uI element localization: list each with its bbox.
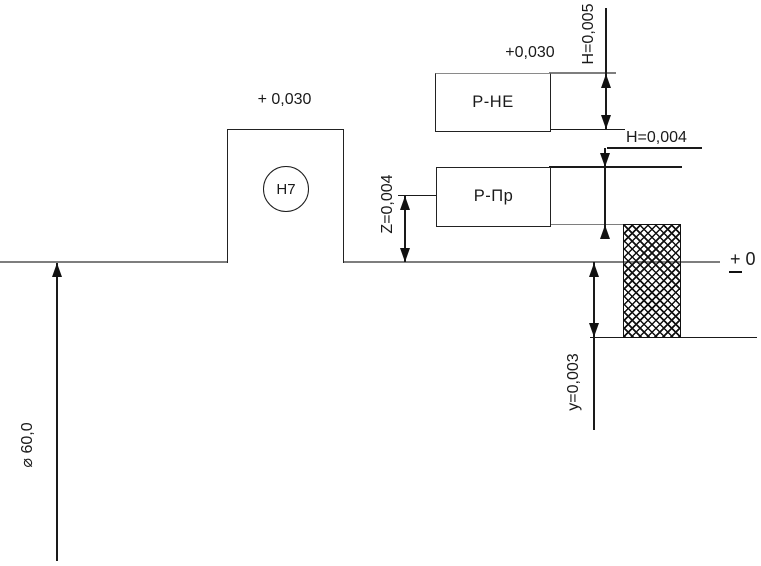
arrowhead-down-icon bbox=[589, 323, 599, 337]
go-tolerance-label: H=0,004 bbox=[626, 129, 687, 147]
arrowhead-down-icon bbox=[600, 153, 610, 167]
go-gauge-box: Р-Пр bbox=[436, 167, 551, 227]
wear-zone-hatch bbox=[623, 224, 682, 339]
arrowhead-up-icon bbox=[601, 74, 611, 88]
arrowhead-down-icon bbox=[400, 248, 410, 262]
nogo-bottom-extension-line bbox=[549, 129, 625, 130]
tolerance-diagram: +0 H7 + 0,030 ⌀ 60,0 Р-НЕ +0,030 H=0,005… bbox=[0, 0, 761, 566]
go-top-extension-line bbox=[549, 166, 682, 167]
nogo-dimension-line bbox=[605, 8, 606, 130]
hole-tolerance-circle: H7 bbox=[263, 166, 309, 212]
plus-minus-sign: + bbox=[729, 249, 742, 273]
diameter-dimension-line bbox=[56, 263, 57, 561]
arrowhead-up-icon bbox=[589, 263, 599, 277]
go-bottom-extension-line bbox=[549, 224, 623, 225]
hole-tolerance-box: H7 bbox=[227, 129, 344, 263]
go-tolerance-leader-line bbox=[607, 147, 702, 148]
hole-upper-deviation-label: + 0,030 bbox=[227, 91, 342, 109]
nogo-upper-deviation-label: +0,030 bbox=[495, 44, 565, 62]
nogo-gauge-box: Р-НЕ bbox=[435, 73, 551, 133]
arrowhead-up-icon bbox=[600, 225, 610, 239]
arrowhead-up-icon bbox=[400, 196, 410, 210]
arrowhead-down-icon bbox=[601, 115, 611, 129]
nogo-gauge-label: Р-НЕ bbox=[472, 93, 513, 112]
zero-line bbox=[0, 261, 720, 262]
zero-value: 0 bbox=[746, 249, 756, 269]
go-gauge-label: Р-Пр bbox=[474, 187, 514, 206]
hole-tolerance-symbol: H7 bbox=[276, 181, 295, 198]
nogo-tolerance-label: H=0,005 bbox=[579, 0, 599, 74]
wear-dimension-line bbox=[593, 262, 594, 430]
arrowhead-up-icon bbox=[52, 263, 62, 277]
z-offset-label: Z=0,004 bbox=[378, 164, 398, 244]
zero-line-label: +0 bbox=[729, 249, 756, 273]
wear-limit-label: y=0,003 bbox=[564, 342, 584, 422]
shaft-diameter-label: ⌀ 60,0 bbox=[18, 405, 38, 485]
